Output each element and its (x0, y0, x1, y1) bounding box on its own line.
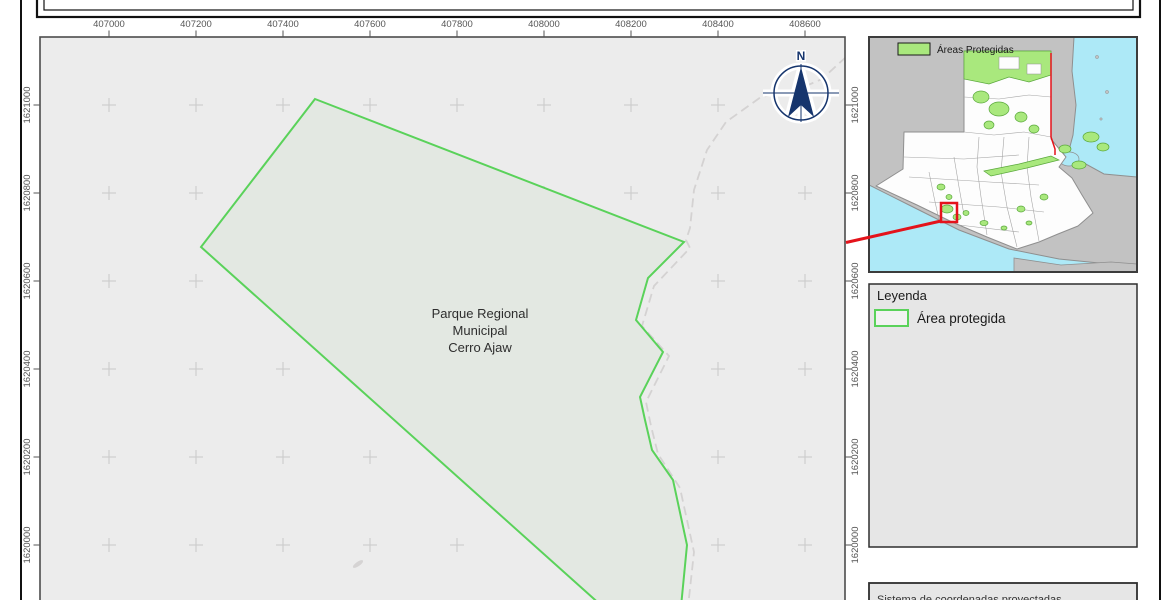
x-tick-label: 407000 (93, 19, 125, 30)
north-label: N (797, 49, 806, 63)
y-axis-labels-left: 1621000162080016206001620400162020016200… (22, 87, 40, 564)
x-tick-label: 408000 (528, 19, 560, 30)
legend-item-label: Área protegida (917, 311, 1006, 326)
y-tick-label-right: 1620000 (850, 527, 861, 564)
inset-hole (999, 57, 1019, 69)
area-label-line2: Municipal (453, 323, 508, 338)
x-tick-label: 407600 (354, 19, 386, 30)
y-tick-label-right: 1621000 (850, 87, 861, 124)
island (1100, 118, 1102, 120)
map-layout-page: Parque Regional Municipal Cerro Ajaw N (0, 0, 1170, 600)
y-tick-label-right: 1620400 (850, 351, 861, 388)
x-tick-label: 407800 (441, 19, 473, 30)
y-tick-label-left: 1620000 (22, 527, 33, 564)
footer-clipped-text: Sistema de coordenadas proyectadas (877, 594, 1062, 600)
x-tick-label: 408200 (615, 19, 647, 30)
inset-legend-label: Áreas Protegidas (937, 43, 1014, 56)
inset-overview-map: Áreas Protegidas (869, 37, 1137, 272)
x-tick-label: 407400 (267, 19, 299, 30)
y-tick-label-left: 1620200 (22, 439, 33, 476)
y-tick-label-right: 1620200 (850, 439, 861, 476)
island (1105, 90, 1108, 93)
x-tick-label: 408600 (789, 19, 821, 30)
y-tick-label-right: 1620600 (850, 263, 861, 300)
y-tick-label-left: 1620400 (22, 351, 33, 388)
y-tick-label-left: 1620600 (22, 263, 33, 300)
y-tick-label-right: 1620800 (850, 175, 861, 212)
x-axis-labels: 4070004072004074004076004078004080004082… (93, 19, 821, 37)
map-scene: Parque Regional Municipal Cerro Ajaw N (0, 0, 1170, 600)
footer-panel: Sistema de coordenadas proyectadas (869, 583, 1137, 600)
inset-hole (1027, 64, 1041, 74)
main-map: Parque Regional Municipal Cerro Ajaw N (22, 19, 861, 600)
island (1095, 55, 1098, 58)
area-label-line1: Parque Regional (432, 306, 529, 321)
legend-title: Leyenda (877, 288, 928, 303)
title-box (37, 0, 1140, 17)
inset-legend-swatch (898, 43, 930, 55)
legend-panel: Leyenda Área protegida (869, 284, 1137, 547)
legend-swatch-protected-area (875, 310, 908, 326)
inset-legend: Áreas Protegidas (898, 43, 1014, 56)
y-tick-label-left: 1621000 (22, 87, 33, 124)
y-axis-labels-right: 1621000162080016206001620400162020016200… (845, 87, 861, 564)
area-label-line3: Cerro Ajaw (448, 340, 512, 355)
x-tick-label: 407200 (180, 19, 212, 30)
y-tick-label-left: 1620800 (22, 175, 33, 212)
x-tick-label: 408400 (702, 19, 734, 30)
